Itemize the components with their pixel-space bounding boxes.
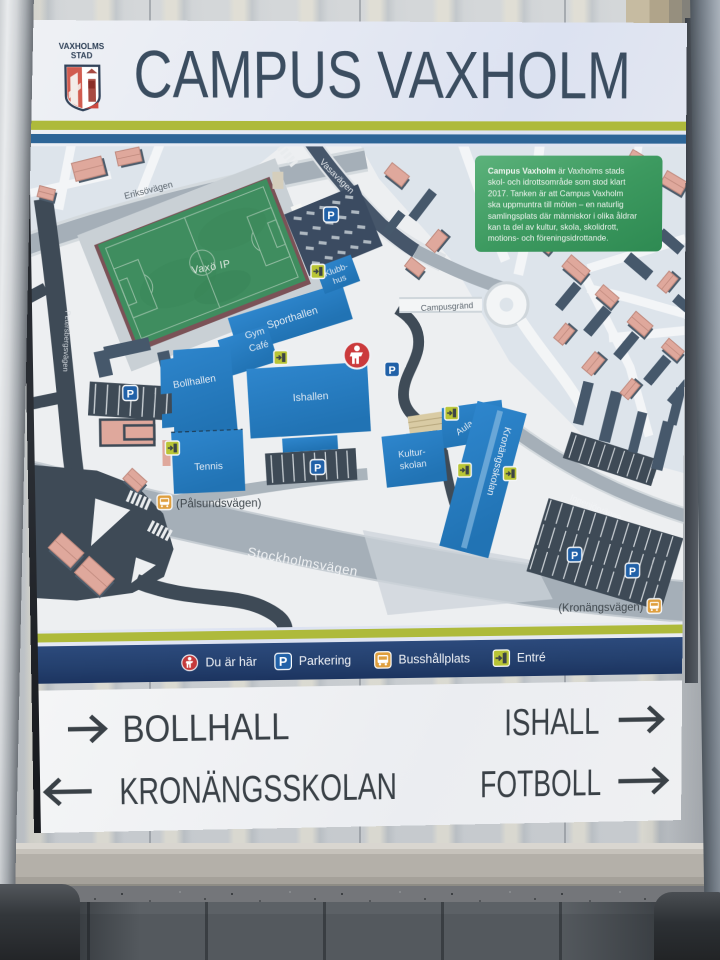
svg-text:motions- och föreningsidrottan: motions- och föreningsidrottande. xyxy=(488,233,609,243)
svg-text:KRONÄNGSSKOLAN: KRONÄNGSSKOLAN xyxy=(119,766,397,813)
svg-text:ska uppmuntra till möten – en: ska uppmuntra till möten – en naturlig xyxy=(488,199,624,209)
svg-text:Campus Vaxholm är Vaxholms sta: Campus Vaxholm är Vaxholms stads xyxy=(488,166,625,176)
svg-text:2017. Tanken är att Campus Vax: 2017. Tanken är att Campus Vaxholm xyxy=(488,188,623,198)
svg-text:CAMPUS VAXHOLM: CAMPUS VAXHOLM xyxy=(133,38,631,114)
svg-text:(Kronängsvägen): (Kronängsvägen) xyxy=(558,600,643,614)
svg-text:skol- och idrottsområde som st: skol- och idrottsområde som stod klart xyxy=(488,177,626,187)
svg-text:BOLLHALL: BOLLHALL xyxy=(122,706,290,751)
svg-text:FOTBOLL: FOTBOLL xyxy=(480,762,601,805)
svg-text:(Pålsundsvägen): (Pålsundsvägen) xyxy=(176,496,262,510)
svg-text:ISHALL: ISHALL xyxy=(504,701,599,744)
svg-text:kan ta del av kultur, skola, s: kan ta del av kultur, skola, skolidrott, xyxy=(488,222,619,232)
svg-text:samlingsplats där människor i: samlingsplats där människor i olika åldr… xyxy=(488,211,637,221)
svg-text:Tennis: Tennis xyxy=(194,461,223,473)
svg-text:P: P xyxy=(279,654,288,668)
svg-text:Ishallen: Ishallen xyxy=(292,390,328,404)
